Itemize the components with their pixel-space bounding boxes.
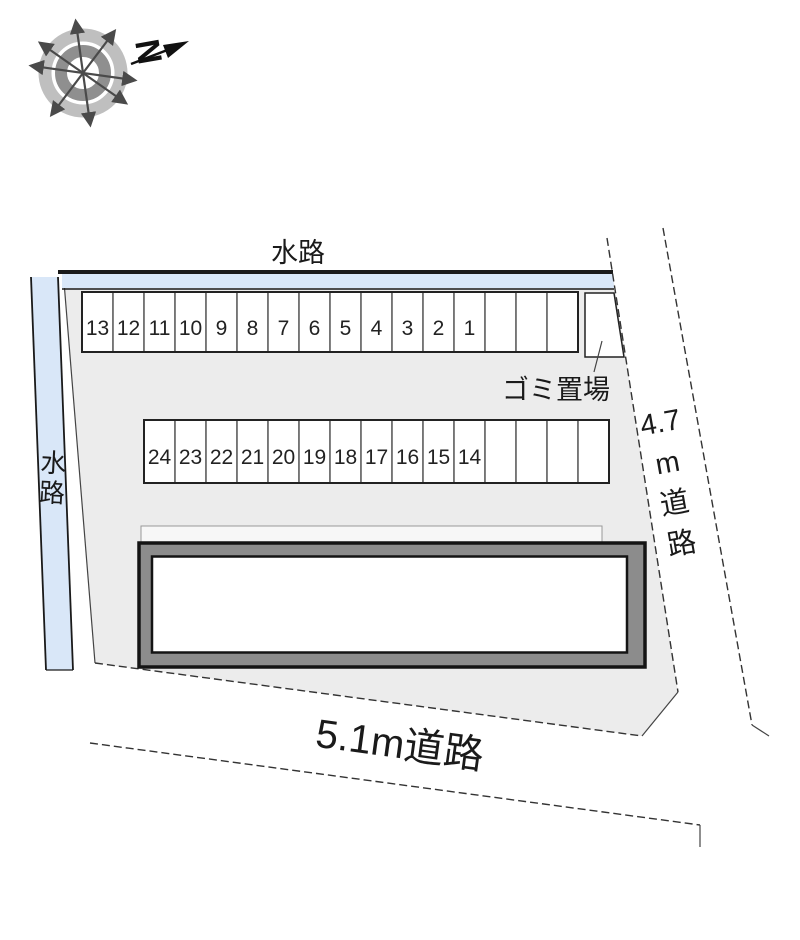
parking-stall-empty bbox=[516, 292, 547, 352]
waterway-top-channel bbox=[62, 273, 614, 288]
waterway-top: 水路 bbox=[58, 238, 614, 289]
waterway-left-label: 水路 bbox=[38, 447, 67, 508]
waterway-left: 水路 bbox=[31, 277, 73, 670]
building-interior bbox=[152, 557, 627, 653]
parking-stall-number: 20 bbox=[272, 446, 295, 469]
parking-stall-number: 11 bbox=[149, 317, 171, 340]
parking-stall-number: 9 bbox=[216, 317, 228, 340]
parking-stall-empty bbox=[547, 420, 578, 483]
parking-stall-number: 7 bbox=[278, 317, 290, 340]
garbage-label: ゴミ置場 bbox=[502, 375, 610, 405]
parking-stall-number: 16 bbox=[396, 446, 419, 469]
building bbox=[139, 526, 645, 667]
road-bottom-label: 5.1m道路 bbox=[313, 712, 486, 778]
parking-row-middle: 2423222120191817161514 bbox=[144, 420, 609, 483]
parking-stall-number: 4 bbox=[371, 317, 383, 340]
parking-stall-number: 13 bbox=[86, 317, 109, 340]
parking-stall-number: 5 bbox=[340, 317, 352, 340]
garbage-cell bbox=[585, 293, 624, 357]
site-plan-drawing: N 水路 水路 4.7m道路 5.1m道路 13121110987654321 … bbox=[0, 0, 800, 940]
parking-stall-number: 8 bbox=[247, 317, 259, 340]
parking-stall-number: 15 bbox=[427, 446, 450, 469]
compass-north-label: N bbox=[127, 36, 169, 67]
parking-stall-empty bbox=[485, 420, 516, 483]
building-corridor bbox=[141, 526, 602, 543]
parking-stall-number: 6 bbox=[309, 317, 321, 340]
parking-stall-number: 17 bbox=[365, 446, 388, 469]
parking-stall-number: 1 bbox=[464, 317, 476, 340]
parking-stall-number: 12 bbox=[117, 317, 140, 340]
parking-stall-number: 10 bbox=[179, 317, 202, 340]
waterway-top-label: 水路 bbox=[271, 238, 325, 268]
parking-stall-empty bbox=[485, 292, 516, 352]
parking-stall-number: 21 bbox=[241, 446, 264, 469]
parking-stall-number: 3 bbox=[402, 317, 414, 340]
parking-stall-empty bbox=[578, 420, 609, 483]
site-plan-page: N 水路 水路 4.7m道路 5.1m道路 13121110987654321 … bbox=[0, 0, 800, 940]
parking-stall-number: 19 bbox=[303, 446, 326, 469]
parking-row-top: 13121110987654321 bbox=[82, 292, 578, 352]
parking-stall-number: 24 bbox=[148, 446, 172, 469]
compass: N bbox=[32, 22, 190, 125]
parking-stall-empty bbox=[547, 292, 578, 352]
parking-stall-number: 23 bbox=[179, 446, 202, 469]
parking-stall-number: 2 bbox=[433, 317, 445, 340]
parking-stall-number: 14 bbox=[458, 446, 482, 469]
parking-stall-empty bbox=[516, 420, 547, 483]
parking-stall-number: 18 bbox=[334, 446, 357, 469]
road-right-east-tick bbox=[752, 725, 769, 736]
parking-stall-number: 22 bbox=[210, 446, 233, 469]
